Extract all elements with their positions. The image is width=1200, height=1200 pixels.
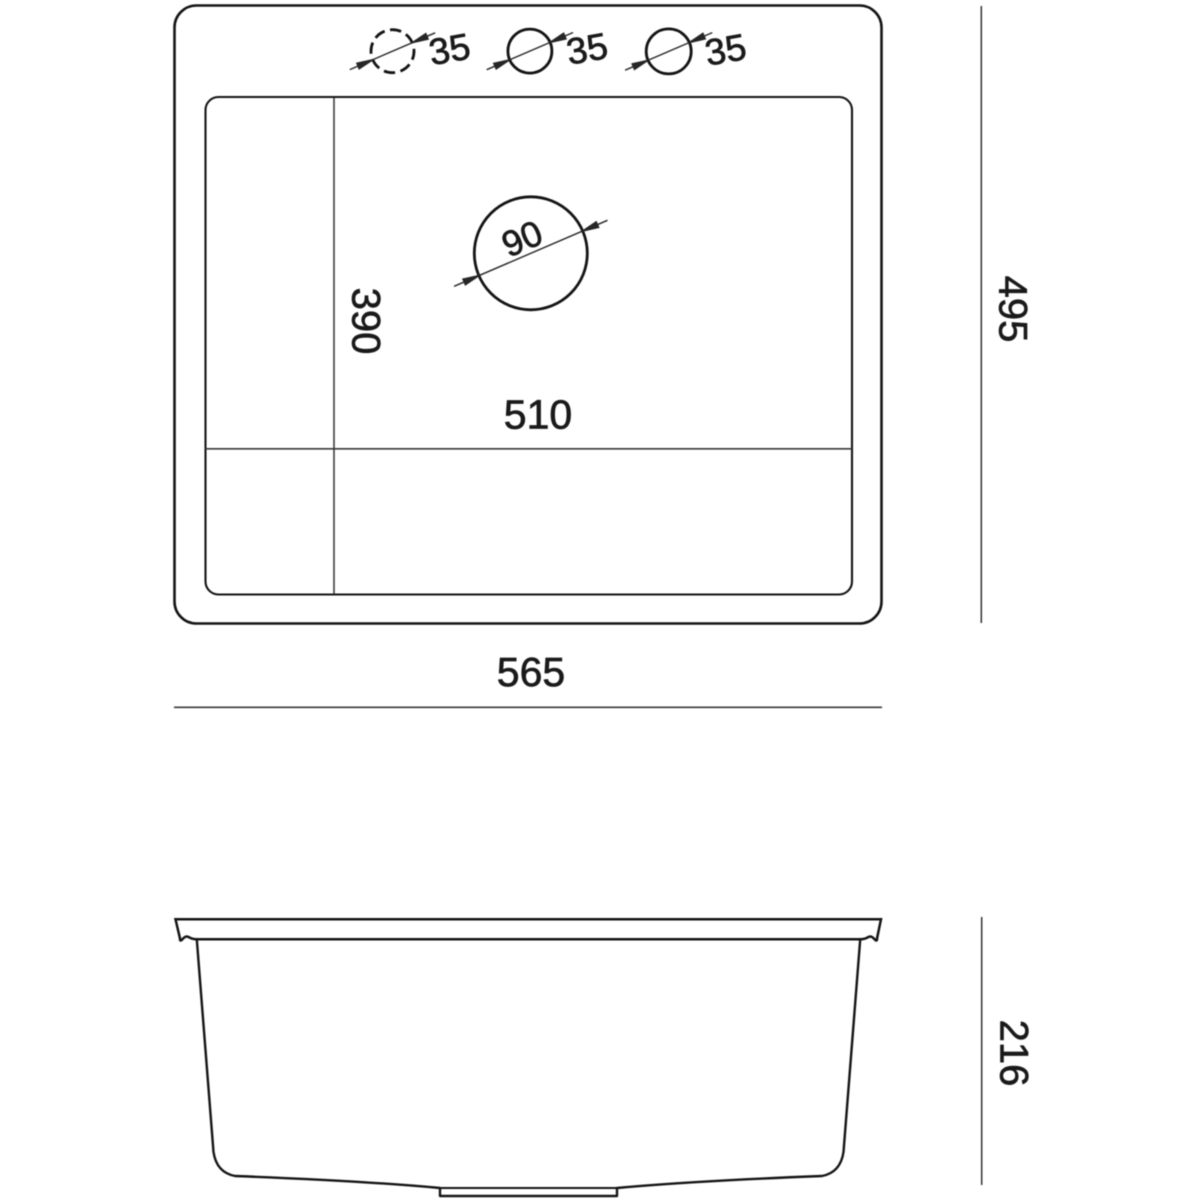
svg-text:35: 35 (426, 26, 474, 74)
svg-text:495: 495 (991, 276, 1035, 343)
svg-text:565: 565 (497, 649, 565, 695)
svg-text:216: 216 (992, 1020, 1036, 1087)
svg-text:35: 35 (702, 26, 750, 74)
svg-text:35: 35 (563, 25, 611, 73)
svg-text:510: 510 (504, 392, 572, 438)
svg-text:390: 390 (344, 288, 388, 355)
